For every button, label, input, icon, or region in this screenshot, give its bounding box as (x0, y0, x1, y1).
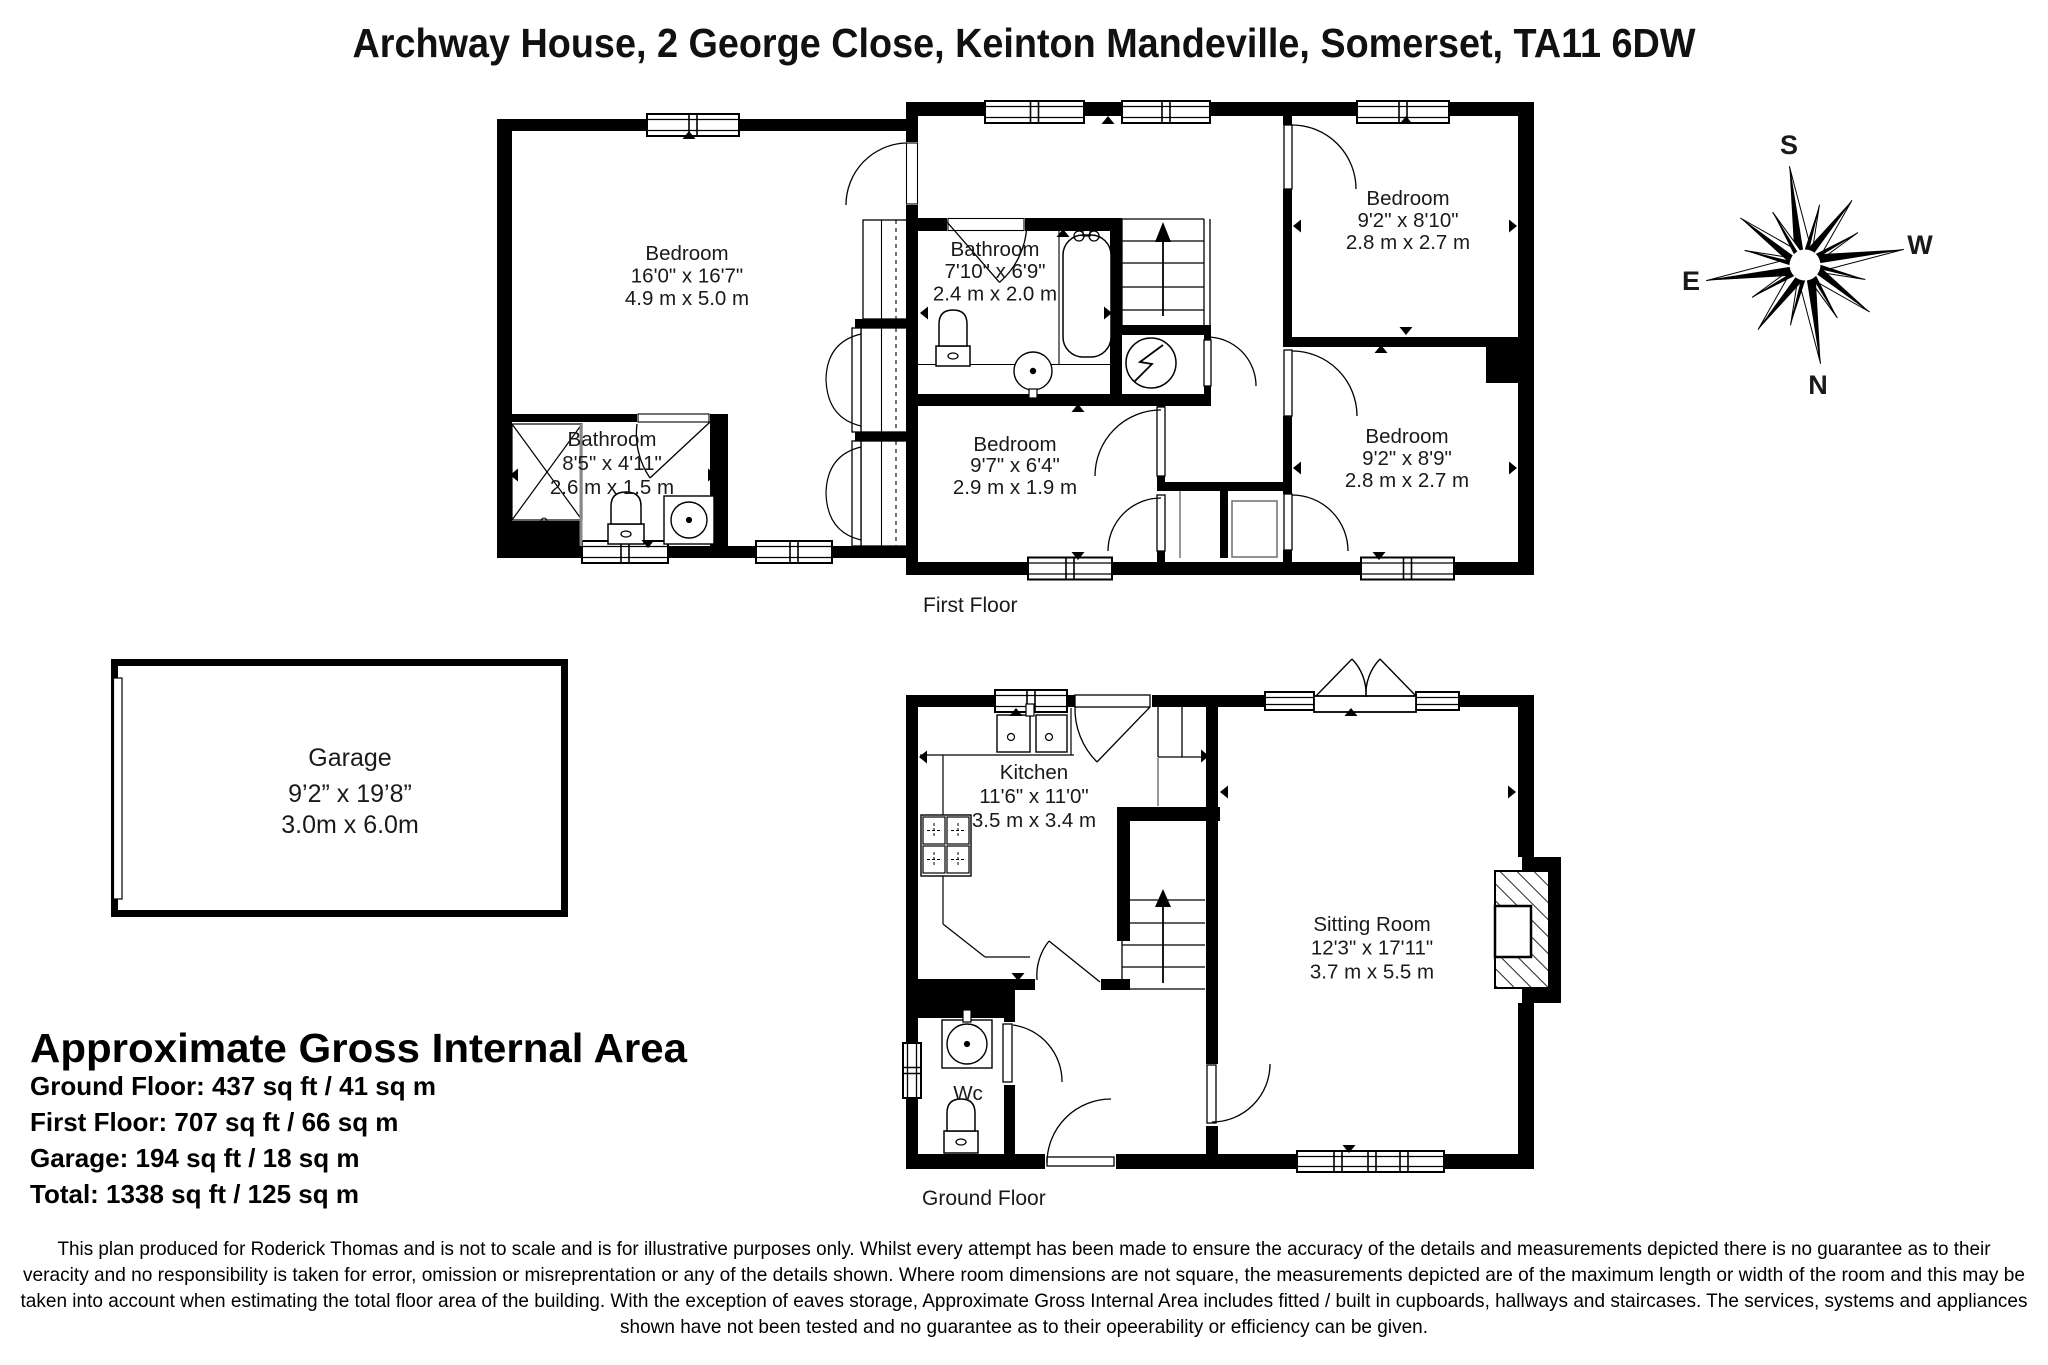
svg-text:Archway House, 2 George Close,: Archway House, 2 George Close, Keinton M… (353, 20, 1696, 66)
svg-text:11'6" x 11'0": 11'6" x 11'0" (979, 785, 1088, 808)
svg-text:taken into account when estima: taken into account when estimating the t… (21, 1290, 2028, 1312)
svg-text:Ground Floor: Ground Floor (922, 1187, 1046, 1210)
svg-text:3.0m x 6.0m: 3.0m x 6.0m (281, 811, 419, 839)
svg-text:16'0" x 16'7": 16'0" x 16'7" (631, 265, 743, 288)
svg-text:Total: 1338 sq ft / 125 sq m: Total: 1338 sq ft / 125 sq m (30, 1179, 359, 1209)
svg-text:First Floor: 707 sq ft / 66 sq: First Floor: 707 sq ft / 66 sq m (30, 1107, 398, 1137)
svg-text:Bedroom: Bedroom (1366, 187, 1449, 210)
svg-text:2.9 m x 1.9 m: 2.9 m x 1.9 m (953, 476, 1077, 499)
svg-text:7'10" x 6'9": 7'10" x 6'9" (944, 260, 1045, 283)
svg-text:9’2” x 19’8”: 9’2” x 19’8” (288, 780, 412, 808)
svg-text:2.6 m x 1.5 m: 2.6 m x 1.5 m (550, 476, 674, 499)
svg-text:Sitting Room: Sitting Room (1313, 913, 1430, 936)
svg-text:2.8 m x 2.7 m: 2.8 m x 2.7 m (1345, 469, 1469, 492)
svg-text:Garage: 194 sq ft / 18 sq m: Garage: 194 sq ft / 18 sq m (30, 1143, 359, 1173)
svg-text:N: N (1808, 370, 1828, 400)
svg-text:9'7" x 6'4": 9'7" x 6'4" (970, 454, 1060, 477)
svg-text:This plan produced for Roderic: This plan produced for Roderick Thomas a… (58, 1238, 1991, 1260)
svg-text:Approximate Gross Internal Are: Approximate Gross Internal Area (30, 1025, 688, 1071)
svg-text:8'5" x 4'11": 8'5" x 4'11" (562, 452, 662, 475)
svg-text:Ground Floor: 437 sq ft / 41 s: Ground Floor: 437 sq ft / 41 sq m (30, 1071, 436, 1101)
svg-text:3.5 m x 3.4 m: 3.5 m x 3.4 m (972, 809, 1096, 832)
svg-text:Bathroom: Bathroom (951, 238, 1040, 261)
svg-text:S: S (1780, 130, 1798, 160)
svg-text:9'2" x 8'10": 9'2" x 8'10" (1357, 209, 1458, 232)
svg-text:9'2" x 8'9": 9'2" x 8'9" (1362, 447, 1452, 470)
svg-text:Bedroom: Bedroom (973, 433, 1056, 456)
svg-text:Kitchen: Kitchen (1000, 761, 1068, 784)
svg-text:Bedroom: Bedroom (645, 242, 728, 265)
svg-text:Garage: Garage (308, 744, 391, 772)
svg-text:W: W (1907, 230, 1933, 260)
svg-text:2.8 m x 2.7 m: 2.8 m x 2.7 m (1346, 231, 1470, 254)
svg-text:2.4 m x 2.0 m: 2.4 m x 2.0 m (933, 283, 1057, 306)
svg-text:E: E (1682, 266, 1700, 296)
svg-text:First Floor: First Floor (923, 594, 1018, 617)
svg-text:veracity and no responsibility: veracity and no responsibility is taken … (23, 1264, 2025, 1286)
svg-text:4.9 m x 5.0 m: 4.9 m x 5.0 m (625, 287, 749, 310)
svg-text:Bedroom: Bedroom (1365, 425, 1448, 448)
svg-text:Wc: Wc (953, 1082, 983, 1105)
svg-text:12'3" x 17'11": 12'3" x 17'11" (1311, 937, 1433, 960)
svg-text:shown have not been tested and: shown have not been tested and no guaran… (620, 1316, 1428, 1338)
svg-text:3.7 m x 5.5 m: 3.7 m x 5.5 m (1310, 961, 1434, 984)
svg-text:Bathroom: Bathroom (568, 428, 657, 451)
